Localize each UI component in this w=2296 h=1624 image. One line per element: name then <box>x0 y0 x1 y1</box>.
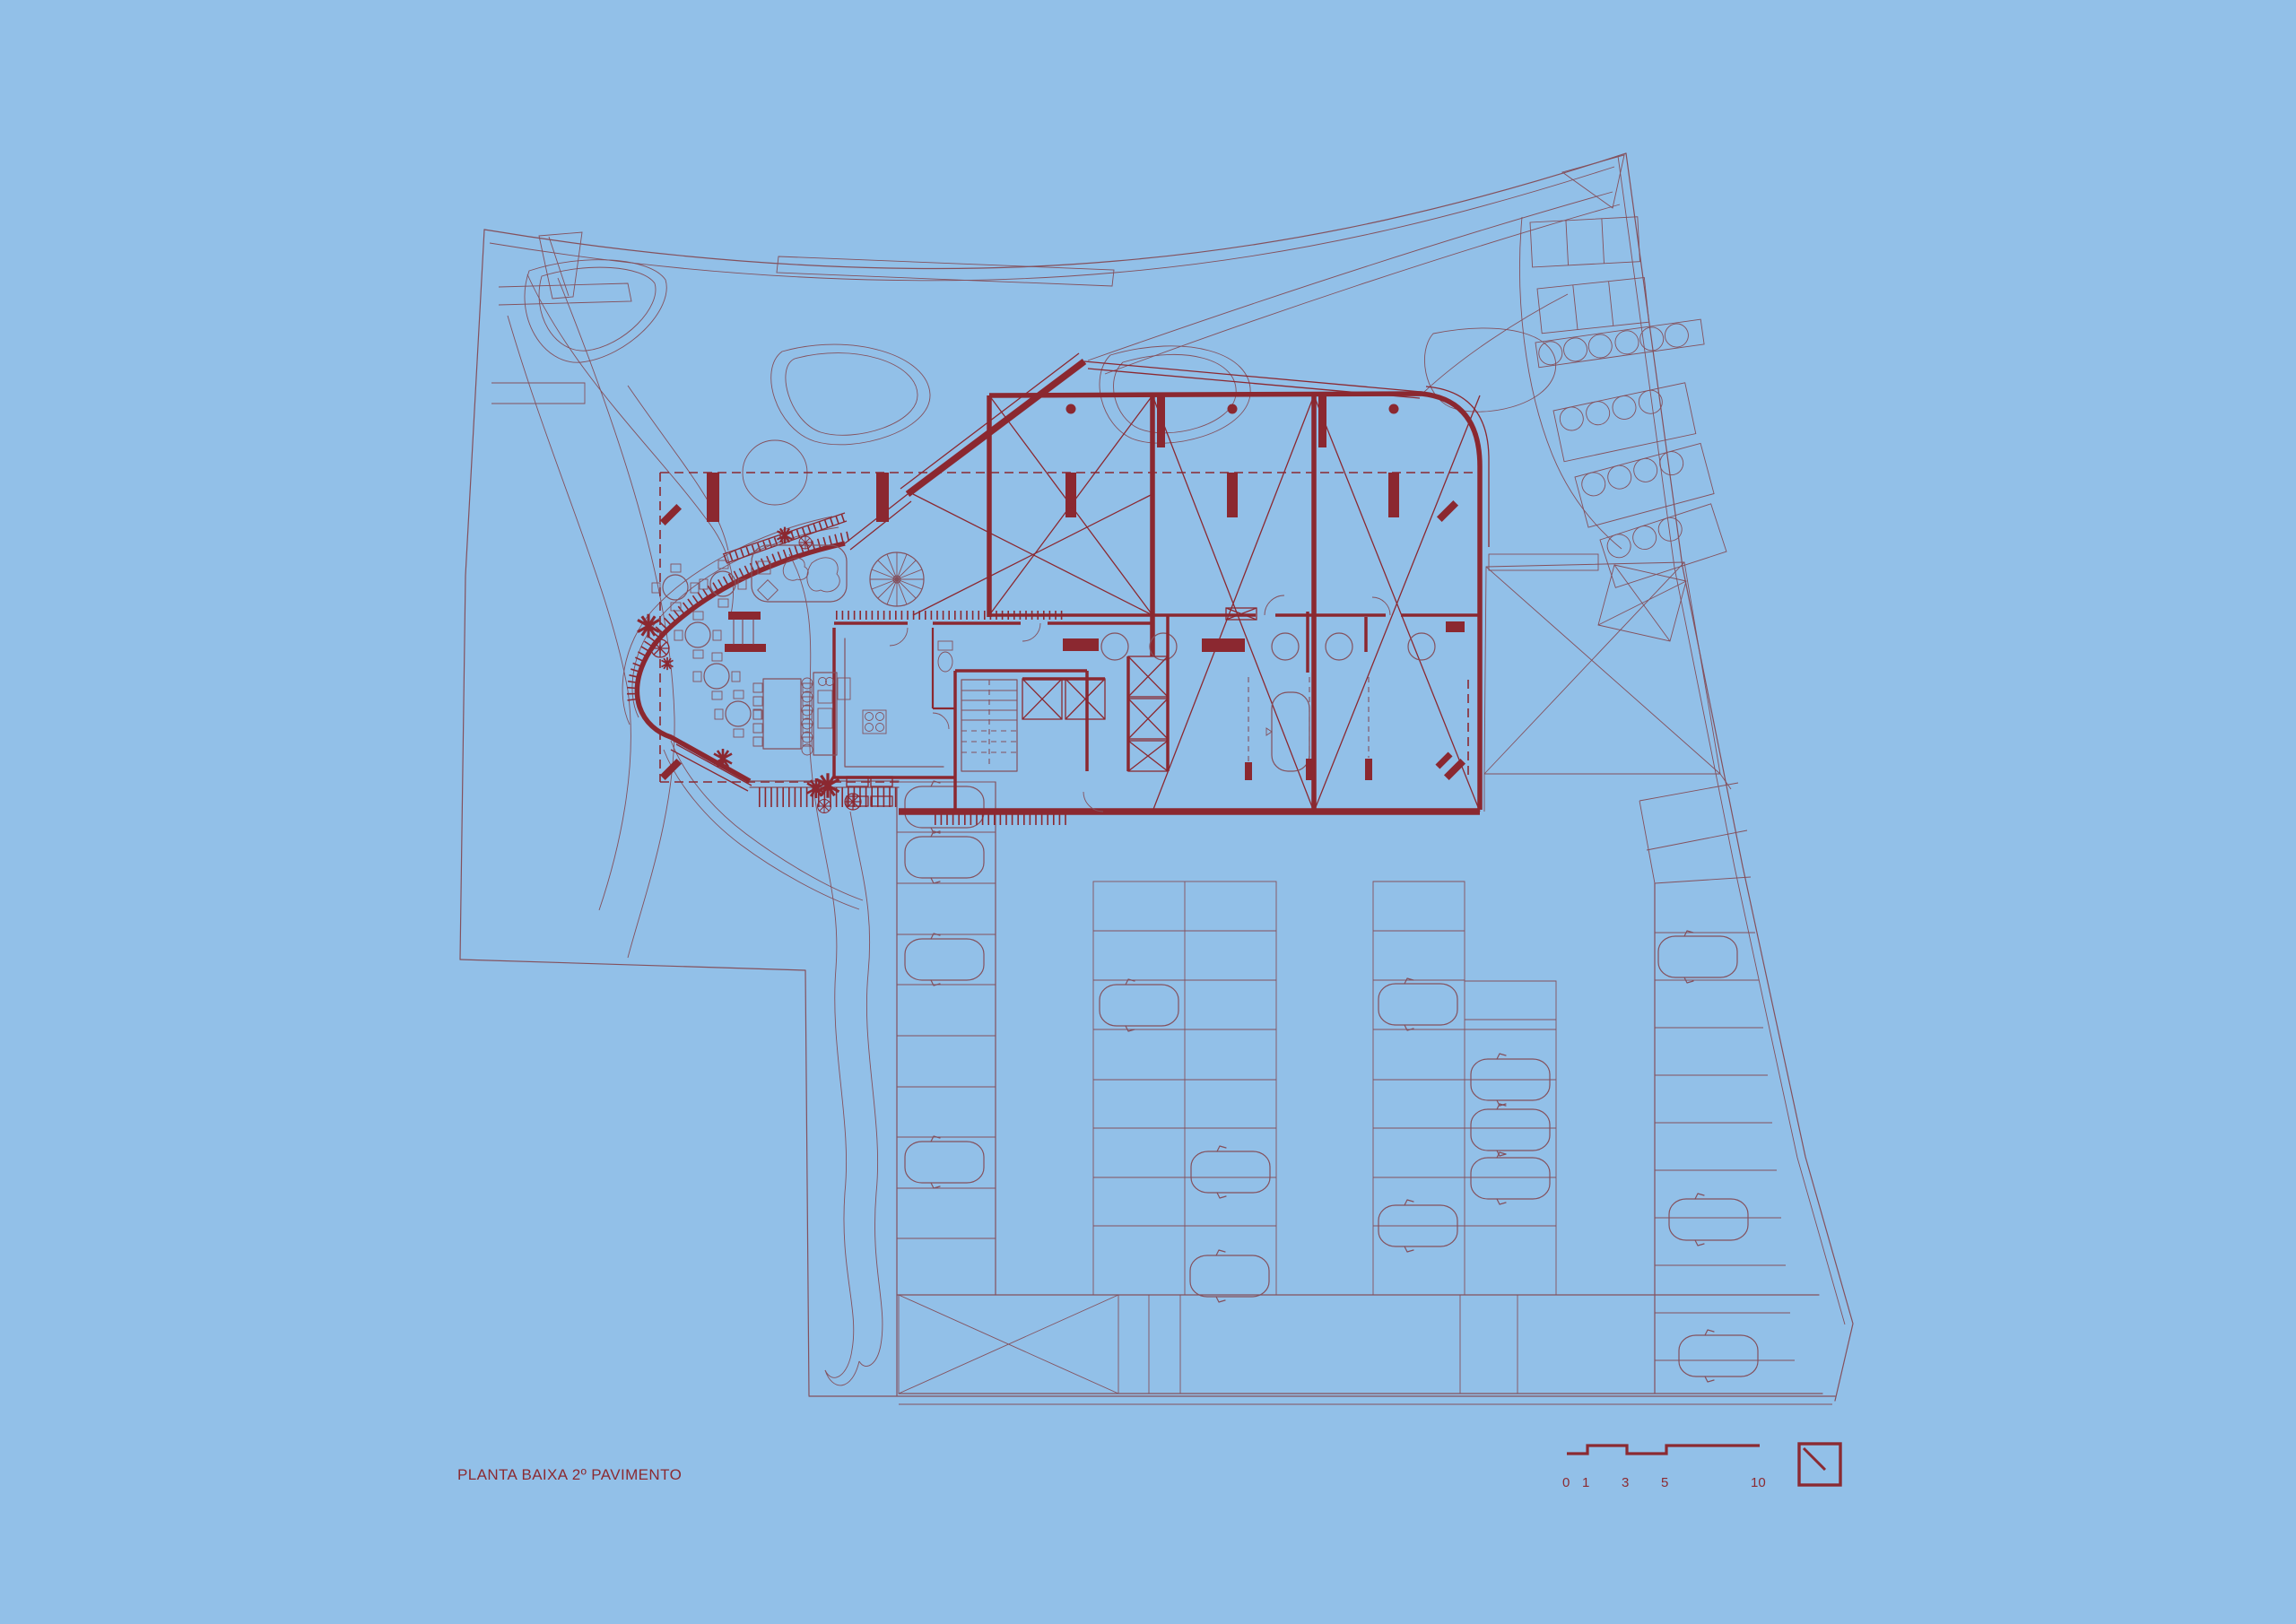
stair-core <box>955 671 1105 810</box>
landscape-contours <box>508 192 1620 1385</box>
scale-label-5: 5 <box>1661 1475 1668 1490</box>
site-boundary <box>460 153 1853 1404</box>
bathroom-fixtures <box>1063 612 1465 780</box>
east-roof-deck <box>1484 554 1731 812</box>
spiral-stair-icon <box>870 552 924 606</box>
scale-label-0: 0 <box>1562 1475 1570 1490</box>
north-indicator-icon <box>1799 1444 1840 1485</box>
floor-plan-drawing: PLANTA BAIXA 2º PAVIMENTO 0 1 3 5 10 <box>0 0 2296 1624</box>
stepped-parking-north <box>1519 217 1726 588</box>
parking-lot <box>897 781 1822 1395</box>
blueprint-sheet: PLANTA BAIXA 2º PAVIMENTO 0 1 3 5 10 <box>0 0 2296 1624</box>
building-second-floor <box>632 353 1489 820</box>
truss-hall-diagonals <box>913 395 1480 812</box>
scale-label-3: 3 <box>1622 1475 1629 1490</box>
scale-label-10: 10 <box>1751 1475 1766 1490</box>
plan-title: PLANTA BAIXA 2º PAVIMENTO <box>457 1466 682 1483</box>
shaft-stack <box>1128 615 1168 771</box>
scale-label-1: 1 <box>1582 1475 1589 1490</box>
scale-bar: 0 1 3 5 10 <box>1562 1446 1766 1490</box>
upper-floor-projection <box>660 473 1480 782</box>
kitchen <box>834 628 955 777</box>
scale-bar-line <box>1567 1446 1760 1454</box>
car-icon <box>905 781 1758 1382</box>
titleblock: PLANTA BAIXA 2º PAVIMENTO <box>457 1466 682 1483</box>
